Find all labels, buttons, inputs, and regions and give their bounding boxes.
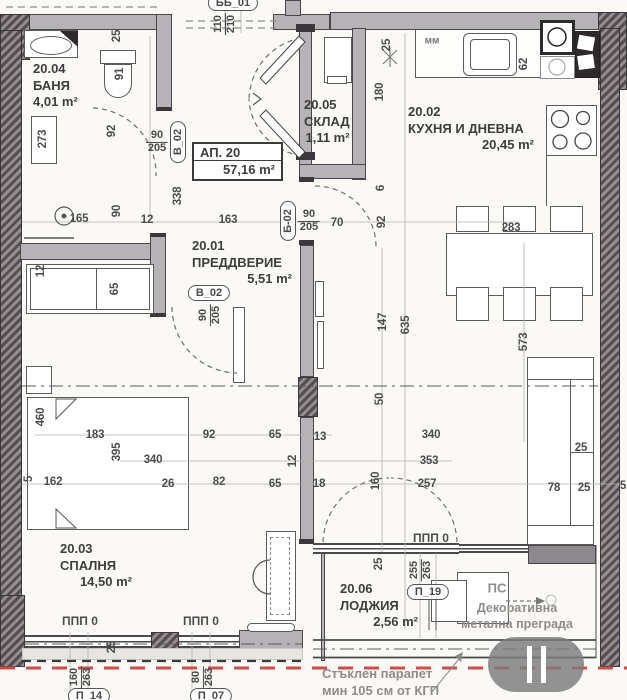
- pause-icon: [527, 646, 532, 683]
- room-name: ЛОДЖИЯ: [340, 598, 399, 613]
- floor-mat: [247, 623, 295, 632]
- wall-bath-bedroom: [20, 243, 166, 260]
- fridge-door: [577, 54, 595, 70]
- wall-loggia-block: [528, 545, 596, 564]
- dimension-label: 78: [548, 482, 560, 494]
- wall-pier-bath-entry: [156, 14, 172, 111]
- chair: [550, 206, 583, 232]
- window-tag-oval: П_19: [407, 584, 449, 600]
- desk-inner: [270, 537, 290, 615]
- room-name: КУХНЯ И ДНЕВНА: [408, 121, 524, 136]
- dimension-label: 13: [314, 431, 326, 443]
- hall-wardrobe-inner: [30, 268, 150, 310]
- door-width: 90: [198, 304, 211, 326]
- dimension-label: 65: [269, 429, 281, 441]
- door-tag-oval: В_02: [170, 121, 186, 163]
- dimension-label: 273: [37, 130, 49, 149]
- dimension-label: 92: [203, 429, 215, 441]
- dimension-label: 65: [269, 478, 281, 490]
- counter-right-edge: [546, 156, 547, 206]
- dimension-label: 25: [575, 442, 587, 454]
- door-height: 205: [298, 222, 320, 234]
- dimension-label: 18: [313, 478, 325, 490]
- chair: [550, 287, 583, 321]
- dimension-label: 62: [518, 58, 530, 70]
- window-width: 160: [69, 666, 82, 688]
- window-p07: [179, 635, 239, 648]
- note-line: Стъклен парапет: [322, 666, 432, 681]
- wall-top-stub: [285, 0, 301, 16]
- note-ps: ПС: [488, 581, 507, 596]
- wall-cap: [156, 107, 172, 111]
- room-area: 1,11 m²: [304, 130, 350, 147]
- dimension-label: 12: [141, 214, 153, 226]
- dimension-label: 70: [331, 217, 343, 229]
- note-ppp: ППП 0: [62, 614, 98, 628]
- nightstand: [26, 366, 52, 394]
- note-ppp: ППП 0: [413, 531, 449, 545]
- dimension-label: 283: [502, 222, 521, 234]
- sofa-line: [527, 379, 594, 380]
- wall-cap: [299, 177, 314, 182]
- dimension-label: 26: [162, 478, 174, 490]
- dimension-label: 340: [422, 429, 441, 441]
- door-tag-oval: Б-02: [280, 201, 296, 241]
- wall-storage-right: [352, 28, 366, 180]
- fridge-door: [577, 35, 595, 52]
- door-tag-oval: ББ_01: [208, 0, 258, 11]
- wall-loggia-left: [321, 553, 325, 661]
- door-height: 205: [211, 304, 223, 326]
- dimension-label: 25: [381, 39, 393, 51]
- stove: [546, 105, 597, 156]
- dimension-label: 25: [106, 641, 118, 653]
- note-decorative-partition: Декоративна метална преграда: [452, 601, 582, 632]
- window-width: 255: [409, 559, 422, 581]
- note-line: Декоративна: [477, 601, 557, 615]
- wall-cap: [299, 539, 314, 544]
- chair: [456, 206, 489, 232]
- hall-wardrobe-divider: [96, 268, 97, 310]
- dimension-label: 163: [219, 214, 238, 226]
- note-line: метална преграда: [461, 617, 573, 631]
- wall-left-exterior: [0, 30, 22, 667]
- wall-cap: [150, 233, 166, 237]
- door-size-kitchen: 90 205: [298, 209, 320, 233]
- dimension-label: 353: [420, 455, 439, 467]
- chair: [456, 287, 489, 321]
- dimension-label: 165: [70, 213, 89, 225]
- door-tag-kitchen: Б-02: [280, 201, 296, 241]
- room-area: 20,45 m²: [408, 137, 534, 154]
- kitchen-door-arc: [315, 186, 376, 247]
- dimension-label: 25: [578, 482, 590, 494]
- window-size-p14: 160 263: [69, 666, 93, 688]
- loggia-window: [459, 544, 528, 553]
- kitchen-sink-basin: [470, 39, 510, 70]
- door-tag-oval: В_02: [188, 285, 230, 301]
- door-size-bedroom: 90 205: [198, 304, 222, 326]
- dimension-label: 25: [373, 558, 385, 570]
- window-tag-p19: П_19: [407, 584, 449, 600]
- apartment-number: АП. 20: [194, 144, 281, 161]
- window-tag-oval: П_14: [68, 688, 110, 700]
- dimension-label: 91: [114, 68, 126, 80]
- washing-machine: [540, 20, 575, 55]
- dimension-label: 180: [374, 83, 386, 102]
- window-height: 263: [422, 559, 434, 581]
- dimension-label: 25: [111, 30, 123, 42]
- window-height: 263: [82, 666, 94, 688]
- pause-icon: [541, 646, 546, 683]
- door-height: 205: [146, 143, 168, 155]
- dimension-label: 65: [109, 283, 121, 295]
- room-label-storage: 20.05 СКЛАД 1,11 m²: [304, 97, 350, 147]
- dimension-label: 50: [374, 393, 386, 405]
- parapet-arrowhead-icon: [455, 652, 463, 662]
- door-height: 210: [226, 13, 238, 35]
- note-line: мин 105 см от КГП: [322, 683, 439, 698]
- door-width: 90: [146, 130, 168, 143]
- room-label-bath: 20.04 БАНЯ 4,01 m²: [33, 61, 78, 111]
- bath-sink: [30, 36, 72, 55]
- dimension-label: 340: [144, 454, 163, 466]
- bed: [27, 397, 189, 530]
- room-name: СКЛАД: [304, 114, 350, 129]
- dimension-label: 460: [35, 408, 47, 427]
- dimension-label: 338: [172, 187, 184, 206]
- window-width: 80: [191, 666, 204, 688]
- room-id: 20.04: [33, 61, 66, 76]
- room-area: 4,01 m²: [33, 94, 78, 111]
- dimension-label: 162: [44, 476, 63, 488]
- door-meeting-mark: [253, 93, 261, 105]
- shower-drain-icon: [62, 214, 67, 219]
- dimension-label: 147: [377, 313, 389, 332]
- tv-unit-slat: [317, 321, 324, 369]
- window-tag-p14: П_14: [68, 688, 110, 700]
- room-name: ПРЕДДВЕРИЕ: [192, 255, 282, 270]
- wall-cap: [299, 240, 314, 245]
- dimension-label: 395: [111, 443, 123, 462]
- room-id: 20.01: [192, 238, 225, 253]
- room-area: 2,56 m²: [340, 614, 418, 631]
- sofa-line: [527, 525, 594, 526]
- dimension-label: 635: [400, 316, 412, 335]
- room-label-bedroom: 20.03 СПАЛНЯ 14,50 m²: [60, 541, 132, 591]
- room-name: СПАЛНЯ: [60, 558, 116, 573]
- entrance-door-arc: [249, 38, 301, 99]
- wall-central-column: [298, 377, 318, 417]
- door-leaf-bedroom: [233, 307, 245, 383]
- window-p14: [25, 635, 151, 648]
- dimension-label: 6: [375, 185, 387, 191]
- door-width: 90: [298, 209, 320, 222]
- window-tag-oval: П_07: [190, 688, 232, 700]
- note-ppp: ППП 0: [183, 614, 219, 628]
- pause-button[interactable]: [488, 637, 584, 692]
- room-area: 14,50 m²: [60, 574, 132, 591]
- dimension-label: 82: [213, 476, 225, 488]
- window-height: 263: [204, 666, 216, 688]
- storage-shelf-box: [327, 76, 347, 84]
- dimension-label: 12: [287, 455, 299, 467]
- apartment-info-box: АП. 20 57,16 m²: [192, 142, 283, 181]
- room-label-kitchen: 20.02 КУХНЯ И ДНЕВНА 20,45 m²: [408, 104, 534, 154]
- door-tag-bath: В_02: [170, 121, 186, 163]
- door-width: 110: [213, 13, 226, 35]
- toilet-tank: [100, 50, 136, 64]
- window-tag-p07: П_07: [190, 688, 232, 700]
- note-glass-parapet: Стъклен парапет мин 105 см от КГП: [322, 666, 439, 700]
- room-id: 20.02: [408, 104, 441, 119]
- kitchen-cabinet: [540, 56, 575, 79]
- tv-unit-slat: [315, 281, 324, 317]
- door-tag-bb01: ББ_01: [208, 0, 258, 11]
- room-id: 20.06: [340, 581, 373, 596]
- wall-right-exterior: [600, 28, 620, 667]
- room-id: 20.05: [304, 97, 337, 112]
- dimension-label: 573: [518, 333, 530, 352]
- dimension-label: 12: [35, 265, 47, 277]
- wall-central-upper: [300, 245, 314, 377]
- floor-plan: 20.04 БАНЯ 4,01 m² 20.05 СКЛАД 1,11 m² 2…: [0, 0, 627, 700]
- window-size-p07: 80 263: [191, 666, 215, 688]
- room-id: 20.03: [60, 541, 93, 556]
- window-sill-bedroom: [22, 648, 303, 660]
- wall-cap: [296, 152, 315, 160]
- wall-cap: [296, 24, 315, 32]
- room-label-hall: 20.01 ПРЕДДВЕРИЕ 5,51 m²: [192, 238, 292, 288]
- dimension-label: 160: [370, 472, 382, 491]
- window-size-p19: 255 263: [409, 559, 433, 581]
- door-tag-bedroom: В_02: [188, 285, 230, 301]
- door-size-bb01: 110 210: [213, 13, 237, 35]
- door-size-bath: 90 205: [146, 130, 168, 154]
- chair: [503, 287, 536, 321]
- dimension-label: 92: [106, 125, 118, 137]
- dimension-label: 92: [376, 216, 388, 228]
- dimension-label: 90: [111, 205, 123, 217]
- dimension-label: 257: [418, 478, 437, 490]
- apartment-area: 57,16 m²: [194, 161, 281, 179]
- dimension-label: 183: [86, 429, 105, 441]
- note-mm: мм: [425, 36, 440, 47]
- room-name: БАНЯ: [33, 78, 70, 93]
- dimension-label: 5: [23, 476, 35, 482]
- dimension-label: 5: [620, 480, 626, 492]
